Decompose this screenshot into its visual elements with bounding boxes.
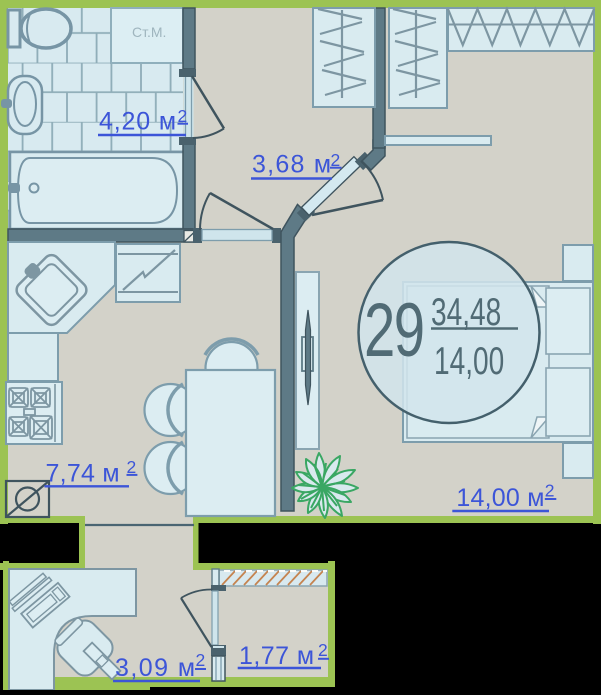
svg-text:Ст.М.: Ст.М. — [132, 24, 166, 40]
svg-text:1,77 м: 1,77 м — [239, 642, 314, 670]
svg-text:2: 2 — [318, 640, 328, 660]
svg-text:14,00 м: 14,00 м — [456, 484, 544, 512]
svg-text:29: 29 — [364, 288, 424, 373]
svg-text:3,09 м: 3,09 м — [115, 654, 195, 682]
svg-text:14,00: 14,00 — [434, 340, 504, 384]
svg-text:4,20 м: 4,20 м — [99, 108, 176, 136]
svg-text:3,68 м: 3,68 м — [252, 151, 331, 179]
svg-text:2: 2 — [545, 481, 555, 501]
svg-text:7,74 м: 7,74 м — [46, 460, 120, 488]
svg-text:2: 2 — [196, 650, 206, 670]
